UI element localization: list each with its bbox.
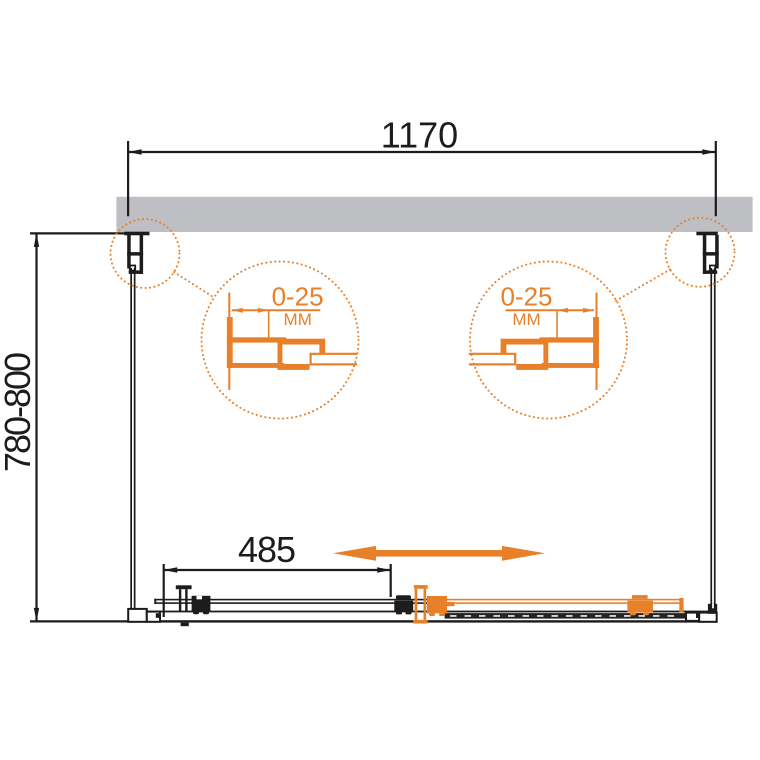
svg-text:MM: MM — [284, 310, 312, 329]
svg-text:0-25: 0-25 — [500, 281, 552, 311]
svg-text:780-800: 780-800 — [0, 353, 38, 472]
svg-text:MM: MM — [512, 310, 540, 329]
svg-text:0-25: 0-25 — [272, 281, 324, 311]
svg-text:485: 485 — [238, 529, 295, 570]
svg-text:1170: 1170 — [381, 115, 458, 156]
